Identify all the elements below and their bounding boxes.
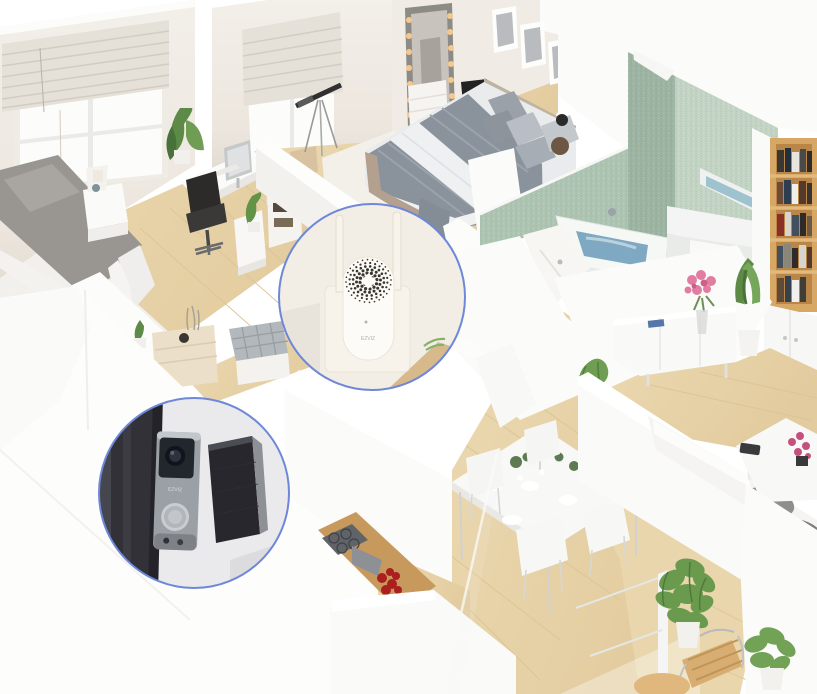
- svg-text:EZVIZ: EZVIZ: [361, 336, 375, 342]
- svg-text:EZVIZ: EZVIZ: [168, 487, 182, 493]
